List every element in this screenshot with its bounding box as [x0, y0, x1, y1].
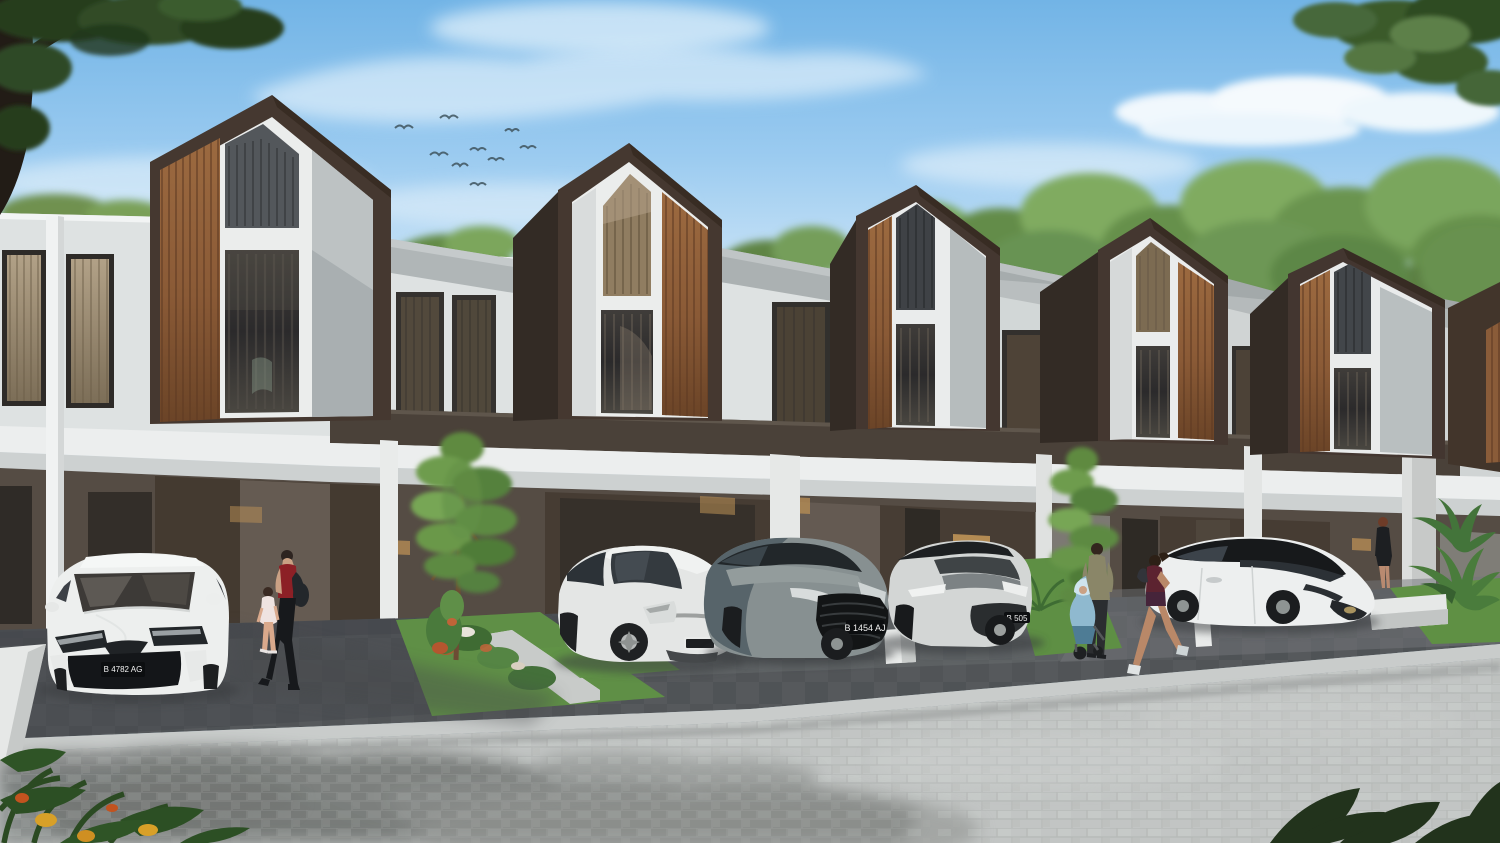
svg-text:B 4782 AG: B 4782 AG	[104, 665, 143, 674]
svg-text:B 1454 AJ: B 1454 AJ	[844, 623, 885, 633]
